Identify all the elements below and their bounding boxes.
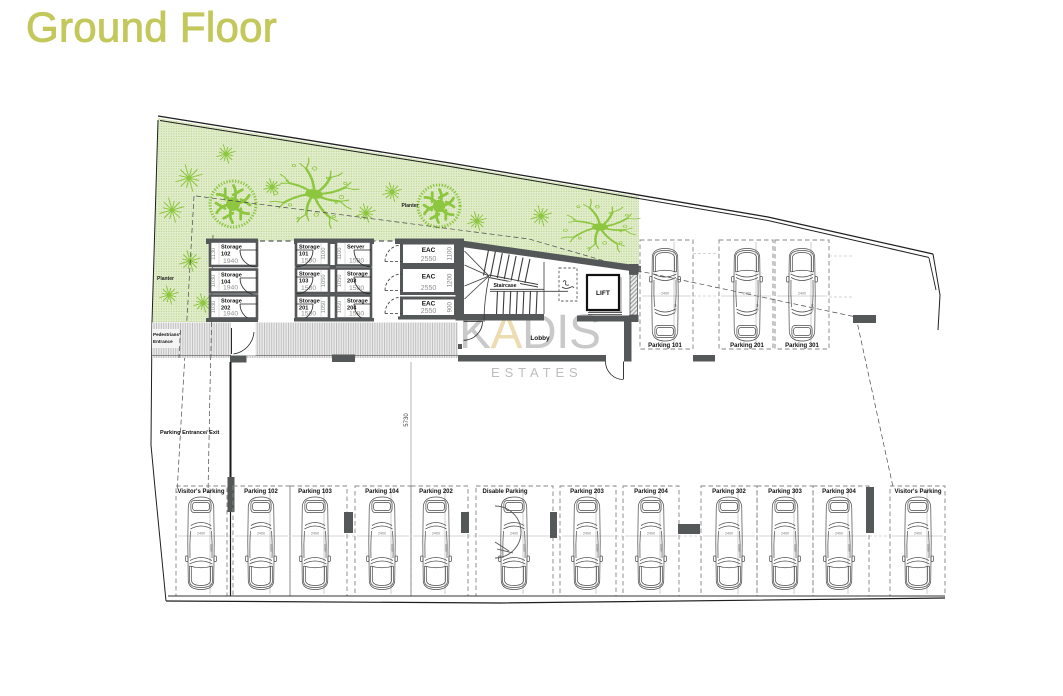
svg-text:Entrance: Entrance (153, 339, 173, 344)
svg-text:Storage: Storage (221, 245, 242, 251)
svg-text:Pedestrians': Pedestrians' (153, 332, 180, 337)
svg-text:4800: 4800 (210, 544, 214, 552)
svg-text:LIFT: LIFT (596, 290, 610, 297)
svg-text:1050: 1050 (337, 301, 343, 313)
svg-text:EAC: EAC (422, 247, 436, 254)
svg-text:Parking 303: Parking 303 (768, 489, 802, 495)
svg-text:1940: 1940 (223, 258, 238, 265)
svg-text:Storage: Storage (221, 299, 242, 305)
svg-text:2400: 2400 (583, 532, 591, 536)
svg-text:Disable Parking: Disable Parking (482, 489, 527, 495)
svg-text:2550: 2550 (421, 285, 437, 292)
svg-text:Parking 304: Parking 304 (822, 489, 856, 495)
svg-text:4800: 4800 (445, 544, 449, 552)
svg-text:2400: 2400 (661, 292, 669, 296)
svg-text:Parking 104: Parking 104 (365, 489, 399, 495)
svg-text:1130: 1130 (211, 248, 217, 260)
svg-text:2400: 2400 (835, 532, 843, 536)
svg-text:4800: 4800 (324, 544, 328, 552)
svg-text:Lobby: Lobby (530, 335, 550, 342)
svg-text:Parking 202: Parking 202 (419, 489, 453, 495)
svg-text:2400: 2400 (510, 532, 518, 536)
svg-text:Parking 101: Parking 101 (648, 343, 682, 349)
svg-text:1580: 1580 (349, 311, 364, 318)
svg-text:2400: 2400 (647, 532, 655, 536)
svg-text:Visitor's Parking: Visitor's Parking (177, 489, 224, 495)
svg-text:Parking 204: Parking 204 (634, 489, 668, 495)
svg-text:1030: 1030 (211, 275, 217, 287)
svg-text:Parking 201: Parking 201 (730, 343, 764, 349)
svg-text:Planter: Planter (402, 203, 419, 209)
svg-text:Parking Entrance/ Exit: Parking Entrance/ Exit (160, 430, 220, 436)
svg-text:Parking 103: Parking 103 (298, 489, 332, 495)
svg-text:Parking 203: Parking 203 (570, 489, 604, 495)
svg-text:1200: 1200 (447, 273, 454, 287)
svg-text:Parking 301: Parking 301 (785, 343, 819, 349)
svg-text:1050: 1050 (337, 275, 343, 287)
svg-text:4800: 4800 (596, 544, 600, 552)
svg-text:103: 103 (299, 279, 308, 285)
svg-text:2550: 2550 (421, 308, 437, 315)
svg-text:1050: 1050 (321, 301, 327, 313)
svg-text:1940: 1940 (223, 285, 238, 292)
svg-text:1580: 1580 (301, 311, 316, 318)
svg-text:1030: 1030 (211, 301, 217, 313)
svg-text:102: 102 (221, 252, 230, 258)
svg-text:2400: 2400 (798, 292, 806, 296)
svg-text:2400: 2400 (725, 532, 733, 536)
svg-text:Ground Floor: Ground Floor (26, 4, 277, 51)
svg-text:2550: 2550 (421, 256, 437, 263)
svg-text:4800: 4800 (848, 544, 852, 552)
svg-text:2400: 2400 (378, 532, 386, 536)
svg-text:EAC: EAC (422, 300, 436, 307)
svg-text:Parking 302: Parking 302 (712, 489, 746, 495)
svg-text:2400: 2400 (311, 532, 319, 536)
svg-text:4800: 4800 (794, 544, 798, 552)
svg-text:2400: 2400 (743, 292, 751, 296)
svg-text:1940: 1940 (223, 311, 238, 318)
svg-text:900: 900 (447, 302, 454, 313)
svg-text:1100: 1100 (337, 247, 343, 259)
svg-text:Storage: Storage (221, 273, 242, 279)
svg-text:4800: 4800 (927, 544, 931, 552)
svg-text:4800: 4800 (738, 544, 742, 552)
svg-text:ESTATES: ESTATES (491, 365, 583, 380)
svg-text:2400: 2400 (432, 532, 440, 536)
svg-text:Staircase: Staircase (493, 283, 516, 289)
svg-text:Visitor's Parking: Visitor's Parking (894, 489, 941, 495)
svg-text:Parking 102: Parking 102 (244, 489, 278, 495)
svg-text:2400: 2400 (257, 532, 265, 536)
svg-text:5730: 5730 (404, 413, 410, 427)
svg-text:2400: 2400 (781, 532, 789, 536)
svg-text:4800: 4800 (391, 544, 395, 552)
svg-text:1100: 1100 (447, 247, 454, 261)
svg-text:4800: 4800 (660, 544, 664, 552)
svg-text:EAC: EAC (422, 274, 436, 281)
svg-text:1050: 1050 (321, 275, 327, 287)
svg-text:2400: 2400 (197, 532, 205, 536)
svg-text:4800: 4800 (270, 544, 274, 552)
svg-text:2400: 2400 (914, 532, 922, 536)
svg-text:Planter: Planter (157, 276, 174, 282)
svg-text:4800: 4800 (523, 544, 527, 552)
svg-text:1100: 1100 (321, 247, 327, 259)
